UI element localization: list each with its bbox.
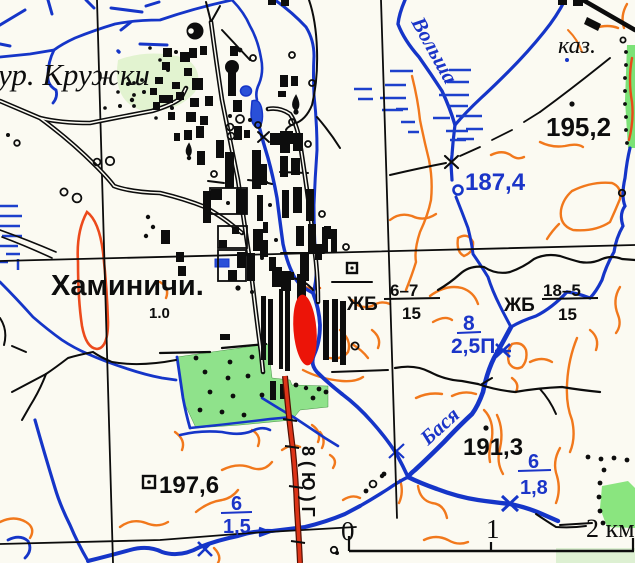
svg-text:каз.: каз.	[558, 33, 596, 59]
svg-text:1,8: 1,8	[520, 477, 548, 499]
svg-text:195,2: 195,2	[546, 112, 611, 142]
svg-text:1,5: 1,5	[223, 516, 251, 538]
svg-text:1: 1	[486, 514, 500, 544]
svg-text:1.0: 1.0	[149, 305, 170, 322]
svg-text:ЖБ: ЖБ	[503, 295, 535, 316]
svg-text:ур. Кружки: ур. Кружки	[0, 57, 150, 92]
svg-text:ЖБ: ЖБ	[346, 294, 378, 315]
svg-text:2 км: 2 км	[586, 514, 635, 543]
svg-text:6–7: 6–7	[390, 281, 418, 300]
svg-text:2,5П: 2,5П	[451, 335, 495, 358]
svg-text:15: 15	[402, 304, 421, 323]
svg-text:Хаминичи.: Хаминичи.	[51, 270, 204, 302]
svg-text:15: 15	[558, 305, 577, 324]
svg-text:18–5: 18–5	[543, 281, 581, 300]
svg-text:197,6: 197,6	[159, 472, 219, 499]
svg-text:8(Ю)Г: 8(Ю)Г	[298, 446, 318, 522]
svg-text:187,4: 187,4	[465, 169, 526, 196]
svg-text:0: 0	[341, 516, 355, 546]
svg-text:191,3: 191,3	[463, 434, 523, 461]
